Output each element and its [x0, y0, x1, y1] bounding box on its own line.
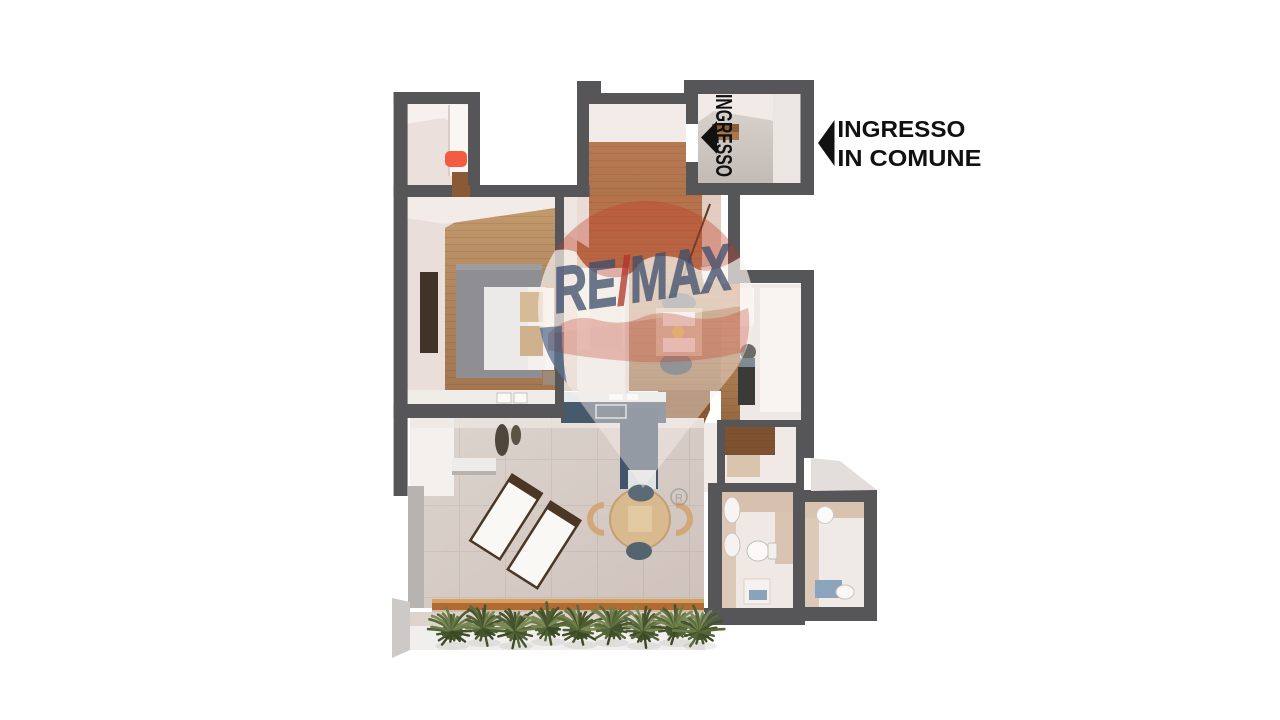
- svg-text:INGRESSO: INGRESSO: [711, 94, 737, 177]
- svg-text:R: R: [675, 493, 683, 505]
- svg-text:INGRESSO: INGRESSO: [837, 116, 965, 142]
- svg-text:IN COMUNE: IN COMUNE: [837, 145, 981, 171]
